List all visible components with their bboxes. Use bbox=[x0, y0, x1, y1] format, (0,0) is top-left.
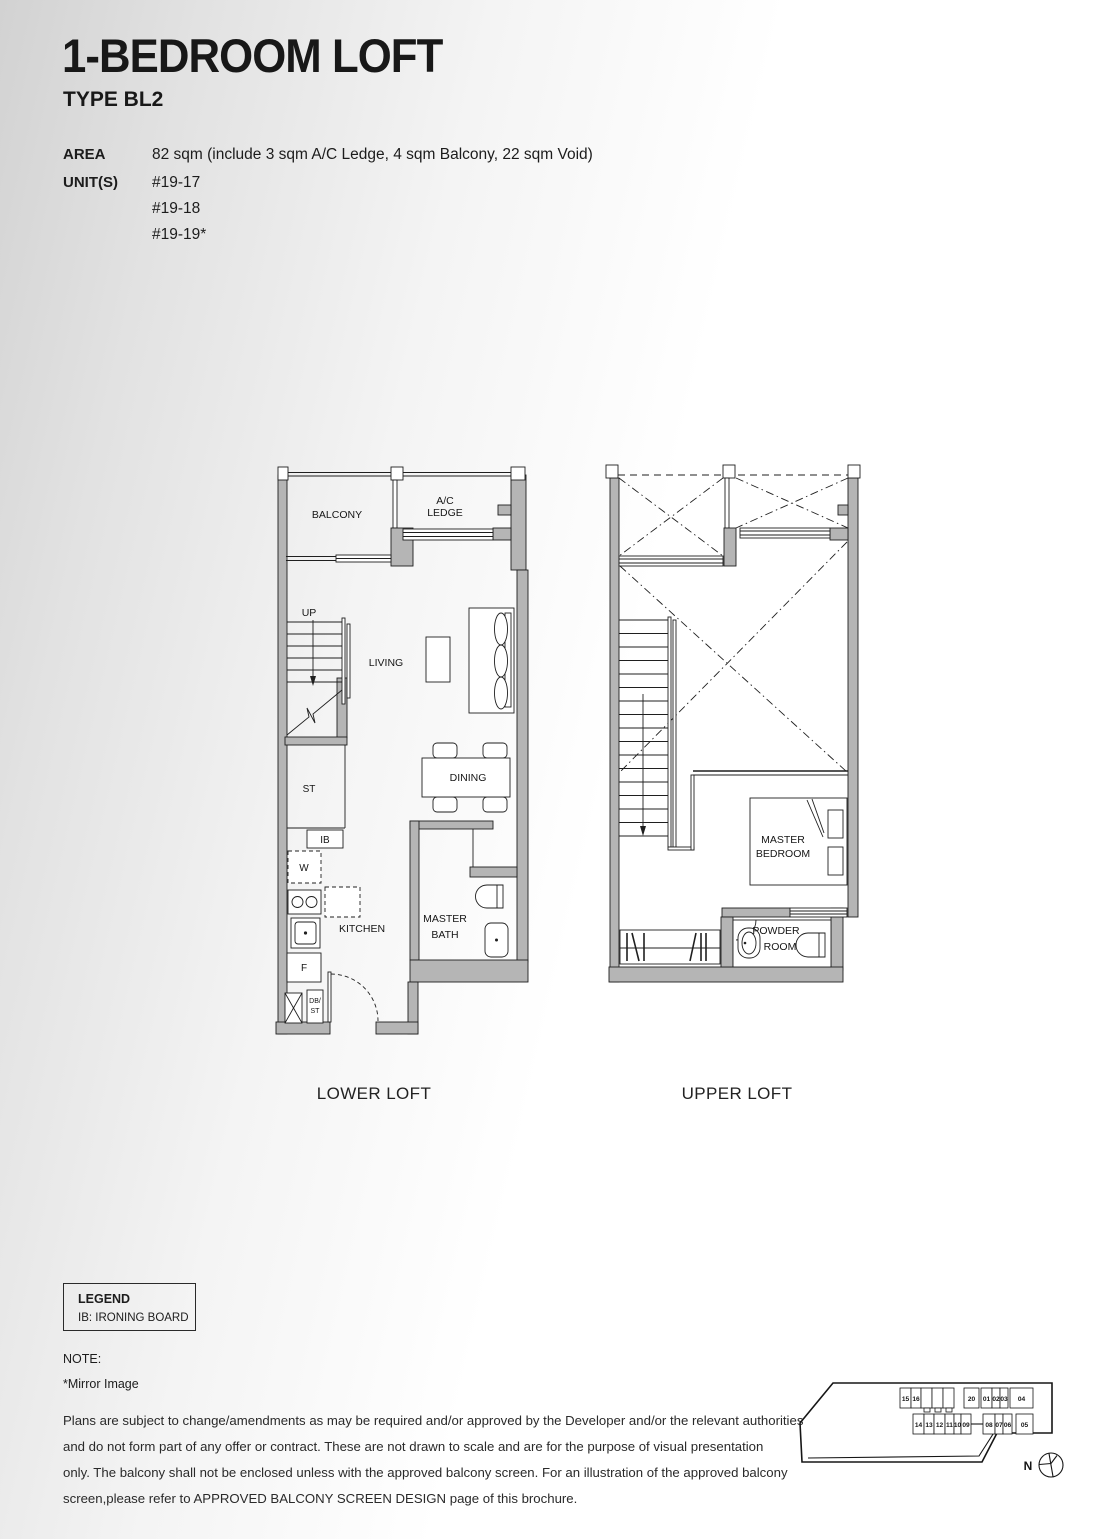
svg-text:11: 11 bbox=[946, 1422, 953, 1429]
svg-text:18: 18 bbox=[934, 1396, 942, 1403]
column bbox=[848, 465, 860, 478]
walls bbox=[606, 465, 860, 982]
master-bath-fixtures bbox=[476, 885, 509, 957]
page-title: 1-BEDROOM LOFT bbox=[62, 28, 442, 83]
svg-text:07: 07 bbox=[995, 1422, 1003, 1429]
svg-text:14: 14 bbox=[915, 1422, 923, 1429]
svg-text:06: 06 bbox=[1004, 1422, 1012, 1429]
entry-door bbox=[328, 972, 378, 1022]
svg-text:01: 01 bbox=[983, 1396, 991, 1403]
room-labels: BALCONY A/C LEDGE UP LIVING DINING ST IB… bbox=[299, 495, 486, 1015]
unit-number: #19-18 bbox=[152, 200, 200, 218]
area-label: AREA bbox=[63, 146, 106, 163]
db-label: DB/ bbox=[309, 998, 321, 1005]
svg-text:15: 15 bbox=[902, 1396, 910, 1403]
powder-room-label: POWDER bbox=[752, 925, 800, 937]
svg-text:19: 19 bbox=[945, 1396, 953, 1403]
living-furniture bbox=[426, 608, 514, 713]
unit-type: TYPE BL2 bbox=[63, 88, 163, 112]
note-title: NOTE: bbox=[63, 1352, 101, 1366]
pillow bbox=[828, 810, 843, 838]
fridge-label: F bbox=[301, 963, 307, 974]
column bbox=[278, 467, 288, 480]
svg-text:LEDGE: LEDGE bbox=[427, 507, 463, 519]
toilet-icon bbox=[476, 885, 504, 908]
upper-loft-caption: UPPER LOFT bbox=[682, 1084, 793, 1104]
unit-number: #19-19* bbox=[152, 226, 206, 244]
note-line: *Mirror Image bbox=[63, 1377, 139, 1391]
svg-text:03: 03 bbox=[1000, 1396, 1008, 1403]
svg-text:10: 10 bbox=[954, 1422, 962, 1429]
area-value: 82 sqm (include 3 sqm A/C Ledge, 4 sqm B… bbox=[152, 146, 593, 164]
svg-text:12: 12 bbox=[936, 1422, 944, 1429]
chair bbox=[483, 797, 507, 812]
units-label: UNIT(S) bbox=[63, 174, 118, 191]
unit-number: #19-17 bbox=[152, 174, 200, 192]
lower-loft-caption: LOWER LOFT bbox=[317, 1084, 432, 1104]
lower-loft-floorplan: BALCONY A/C LEDGE UP LIVING DINING ST IB… bbox=[276, 462, 528, 1034]
north-compass-icon: N bbox=[1024, 1453, 1063, 1477]
svg-text:20: 20 bbox=[968, 1396, 976, 1403]
living-label: LIVING bbox=[369, 657, 403, 669]
washer-label: W bbox=[299, 863, 309, 874]
svg-text:BATH: BATH bbox=[431, 929, 458, 941]
svg-text:17: 17 bbox=[923, 1396, 931, 1403]
svg-text:02: 02 bbox=[992, 1396, 1000, 1403]
svg-text:13: 13 bbox=[925, 1422, 933, 1429]
svg-text:08: 08 bbox=[985, 1422, 993, 1429]
unit-cells: 15 16 17 18 19 20 01 02 03 04 14 13 12 1… bbox=[900, 1388, 1033, 1434]
toilet-icon bbox=[796, 933, 825, 957]
ac-window bbox=[403, 529, 493, 540]
legend-item: IB: IRONING BOARD bbox=[78, 1312, 189, 1324]
dining-label: DINING bbox=[450, 772, 487, 784]
stairs-arrow bbox=[640, 826, 646, 836]
disclaimer-text: Plans are subject to change/amendments a… bbox=[63, 1408, 823, 1512]
kitchen-label: KITCHEN bbox=[339, 923, 385, 935]
svg-text:04: 04 bbox=[1018, 1396, 1026, 1403]
svg-text:16: 16 bbox=[912, 1396, 920, 1403]
column bbox=[511, 467, 525, 480]
break-line bbox=[287, 690, 342, 735]
upper-loft-floorplan: MASTER BEDROOM POWDER ROOM bbox=[604, 462, 860, 984]
svg-text:ROOM: ROOM bbox=[764, 941, 797, 953]
north-label: N bbox=[1024, 1459, 1033, 1473]
svg-text:09: 09 bbox=[962, 1422, 970, 1429]
master-bath-label: MASTER bbox=[423, 913, 467, 925]
stairs bbox=[619, 617, 694, 850]
coffee-table bbox=[426, 637, 450, 682]
legend-box: LEGEND IB: IRONING BOARD bbox=[63, 1283, 196, 1331]
stairs-arrow bbox=[310, 676, 316, 686]
counter bbox=[325, 887, 360, 917]
chair bbox=[433, 797, 457, 812]
chair bbox=[433, 743, 457, 758]
pillow bbox=[828, 847, 843, 875]
wardrobe bbox=[620, 930, 720, 964]
db-st-box bbox=[307, 990, 323, 1023]
column bbox=[391, 467, 403, 480]
chair bbox=[483, 743, 507, 758]
brochure-page: 1-BEDROOM LOFT TYPE BL2 AREA 82 sqm (inc… bbox=[0, 0, 1103, 1539]
ib-label: IB bbox=[320, 835, 330, 846]
column bbox=[606, 465, 618, 478]
st-label: ST bbox=[303, 784, 316, 795]
up-label: UP bbox=[302, 607, 317, 619]
legend-title: LEGEND bbox=[78, 1292, 130, 1306]
svg-text:ST: ST bbox=[311, 1008, 321, 1015]
column bbox=[723, 465, 735, 478]
ac-ledge-label: A/C bbox=[436, 495, 454, 507]
balcony-window bbox=[286, 555, 391, 562]
key-plan: 15 16 17 18 19 20 01 02 03 04 14 13 12 1… bbox=[795, 1372, 1095, 1482]
balcony-label: BALCONY bbox=[312, 509, 362, 521]
master-bedroom-label: MASTER bbox=[761, 834, 805, 846]
svg-text:05: 05 bbox=[1021, 1422, 1029, 1429]
svg-text:BEDROOM: BEDROOM bbox=[756, 848, 810, 860]
